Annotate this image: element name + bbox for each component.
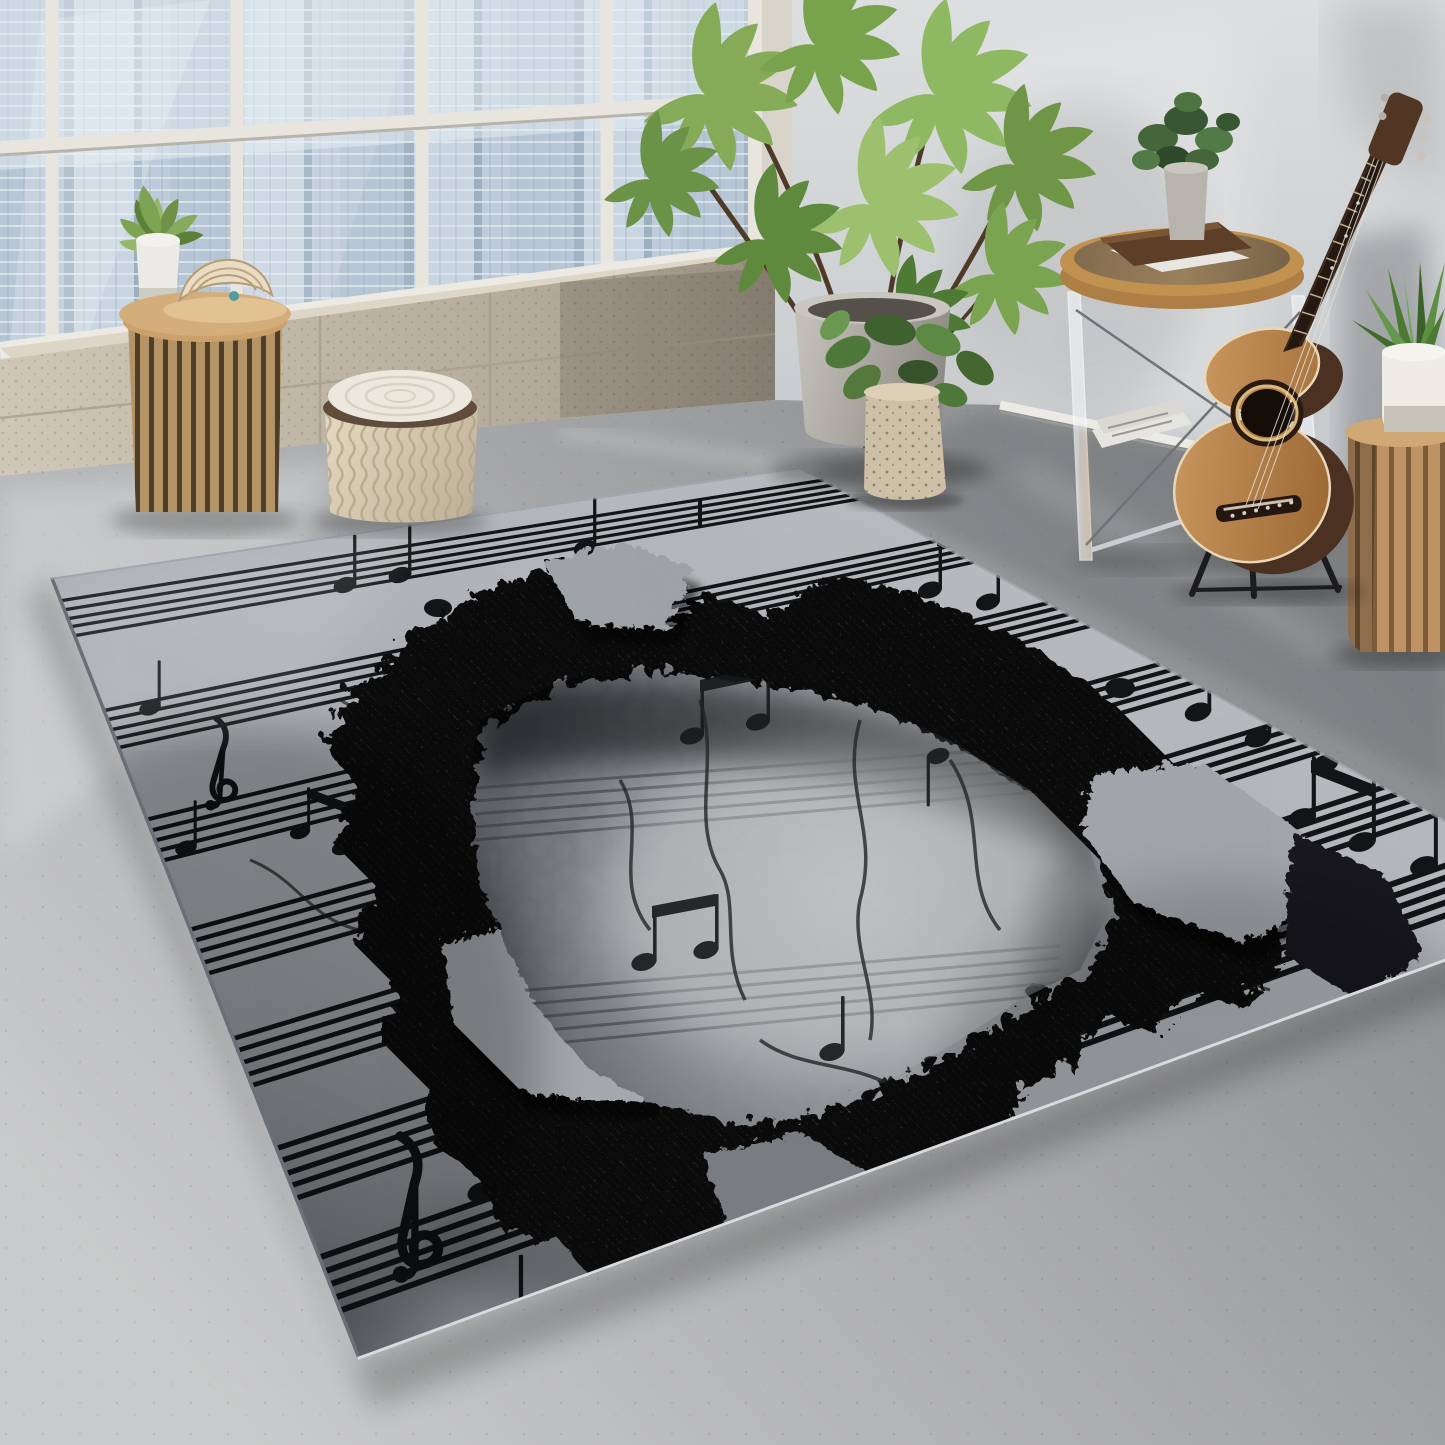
room-scene: [0, 0, 1445, 1445]
wood-slice: [163, 297, 287, 323]
teal-bead: [229, 291, 239, 301]
room-photo: [0, 0, 1445, 1445]
woven-pouf: [312, 370, 488, 536]
sound-hole: [1241, 389, 1293, 437]
grey-pot: [1164, 168, 1208, 240]
rattan-side-table: [110, 260, 300, 536]
